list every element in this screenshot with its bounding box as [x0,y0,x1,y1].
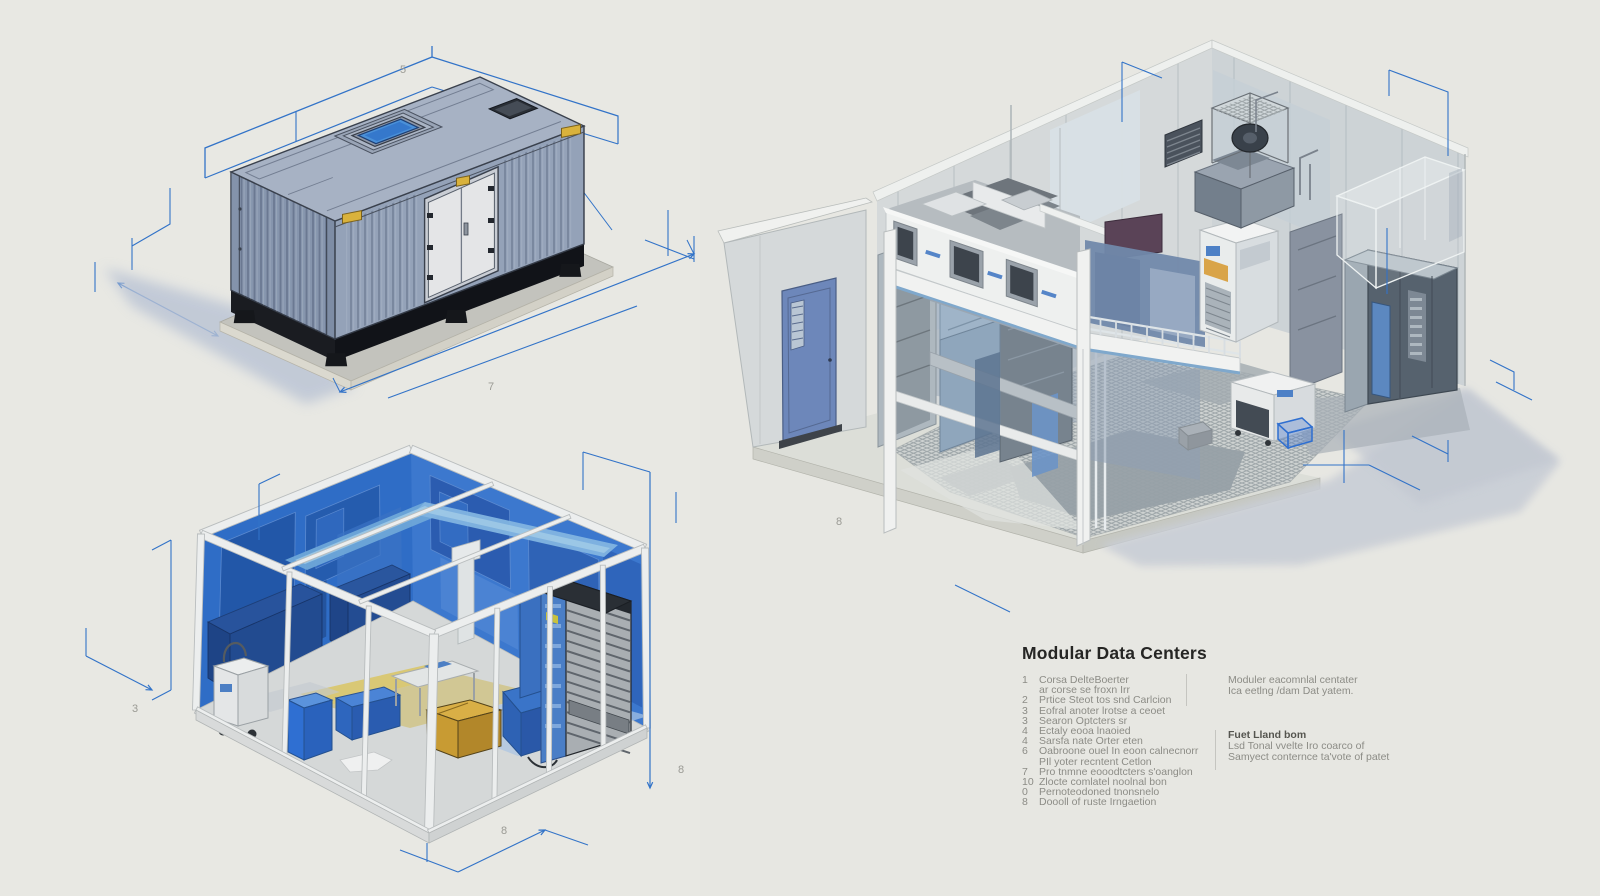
svg-text:8: 8 [501,825,507,837]
svg-text:8: 8 [836,516,842,528]
svg-text:7: 7 [488,381,494,393]
svg-text:5: 5 [400,64,406,76]
svg-text:3: 3 [132,703,138,715]
svg-text:8: 8 [678,764,684,776]
